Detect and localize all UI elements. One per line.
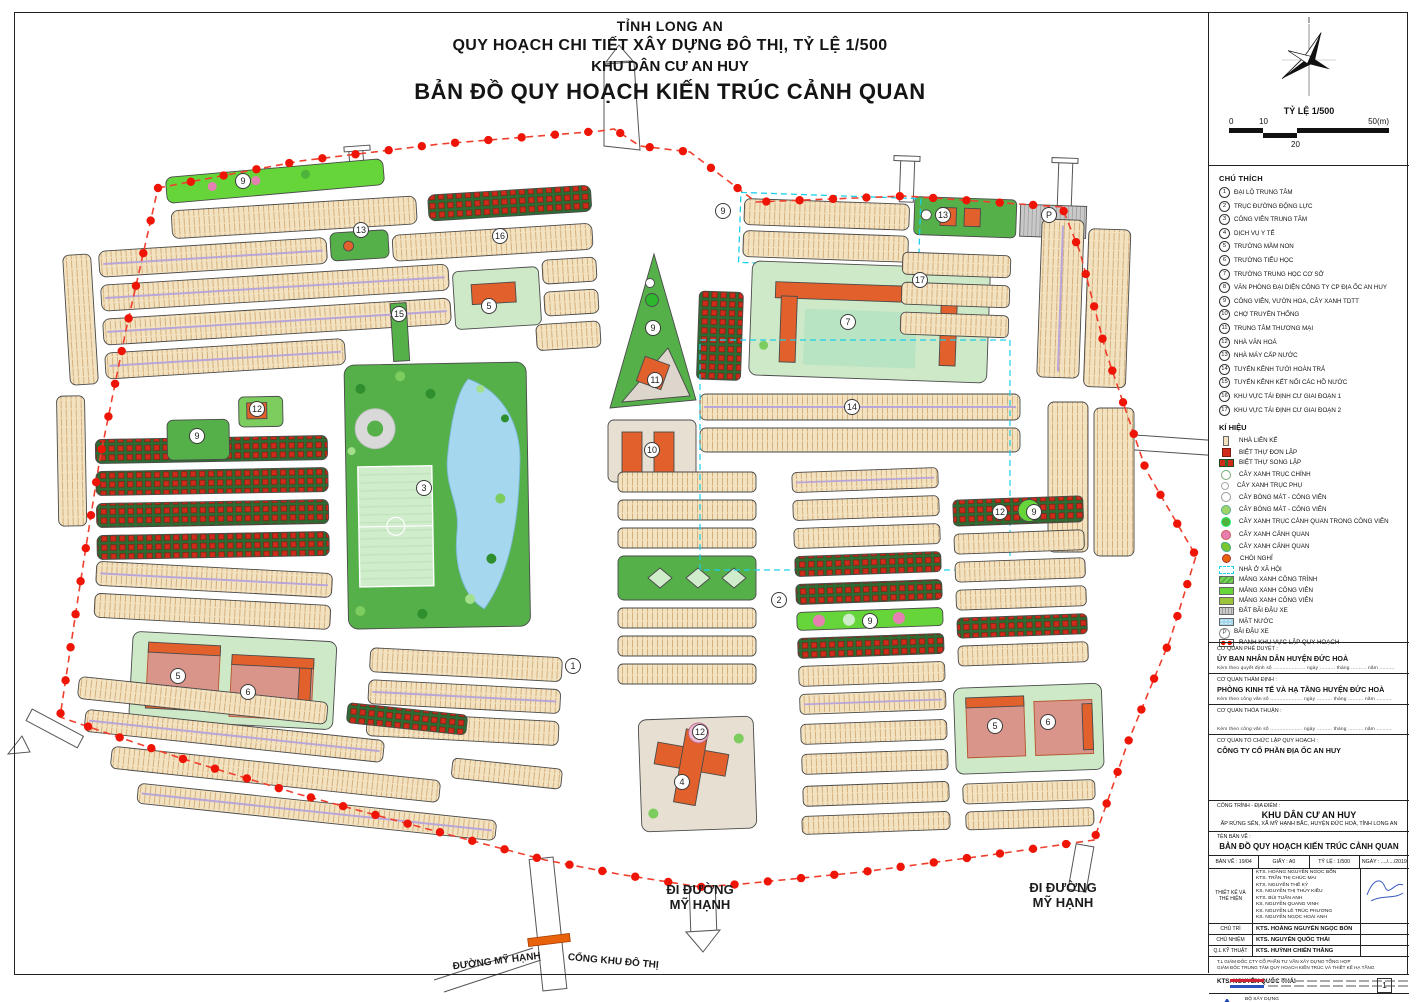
central-park xyxy=(344,362,531,629)
blocks-upper-right xyxy=(696,189,1131,394)
zone-marker-number: 1 xyxy=(570,661,575,671)
legend-item-number: 14 xyxy=(1219,364,1230,375)
symbol-item-label: NHÀ Ở XÃ HỘI xyxy=(1239,566,1282,574)
boundary-dot xyxy=(679,147,687,155)
boundary-dot xyxy=(1098,335,1106,343)
zone-marker: 5 xyxy=(171,669,186,684)
boundary-dot xyxy=(1082,270,1090,278)
blocks-upper-left xyxy=(60,185,601,385)
legend-item-label: TRƯỜNG MẦM NON xyxy=(1234,243,1294,250)
road-label: ĐI ĐƯỜNGMỸ HẠNH xyxy=(1029,880,1096,910)
scale-tick-0: 0 xyxy=(1229,117,1233,126)
plan-map: 91316155129315691110124913P177142912956 … xyxy=(0,0,1417,1002)
zone-marker-number: 14 xyxy=(847,402,857,412)
boundary-dot xyxy=(87,511,95,519)
symbol-item-label: CÂY XANH CẢNH QUAN xyxy=(1239,531,1309,539)
symbol-item-label: BIỆT THỰ ĐƠN LẬP xyxy=(1239,449,1297,457)
legend-item: 17KHU VỰC TÁI ĐỊNH CƯ GIAI ĐOẠN 2 xyxy=(1219,405,1403,416)
symbol-item-label: BIỆT THỰ SONG LẬP xyxy=(1239,459,1301,467)
boundary-dot xyxy=(61,676,69,684)
zone-marker-number: 9 xyxy=(240,176,245,186)
project-row: CÔNG TRÌNH - ĐỊA ĐIỂM : KHU DÂN CƯ AN HU… xyxy=(1209,801,1409,832)
approval-agency-name: PHÒNG KINH TẾ VÀ HẠ TẦNG HUYỆN ĐỨC HOÀ xyxy=(1217,685,1401,694)
drawing-caption: TÊN BẢN VẼ : xyxy=(1217,834,1401,840)
zone-marker: 17 xyxy=(913,273,928,288)
boundary-dot xyxy=(1137,705,1145,713)
legend-item-label: TRƯỜNG TIỂU HỌC xyxy=(1234,257,1293,264)
zone-marker: 14 xyxy=(845,400,860,415)
boundary-dot xyxy=(996,849,1004,857)
legend-item-label: TUYẾN KÊNH TƯỚI HOÀN TRẢ xyxy=(1234,366,1325,373)
legend-item-label: CÔNG VIÊN TRUNG TÂM xyxy=(1234,216,1307,223)
role-label: CHỦ TRÌ xyxy=(1209,924,1253,934)
boundary-dot xyxy=(118,347,126,355)
legend-item-label: CHỢ TRUYỀN THỐNG xyxy=(1234,311,1299,318)
role-signature xyxy=(1361,924,1409,934)
legend-item: 6TRƯỜNG TIỂU HỌC xyxy=(1219,255,1403,266)
boundary-dot xyxy=(1150,674,1158,682)
symbol-item-label: MẢNG XANH CÔNG VIÊN xyxy=(1239,587,1313,595)
boundary-dot xyxy=(211,764,219,772)
zone-marker: 4 xyxy=(675,775,690,790)
water-swatch xyxy=(1219,618,1234,626)
boundary-dot xyxy=(147,744,155,752)
legend-item: 10CHỢ TRUYỀN THỐNG xyxy=(1219,309,1403,320)
boundary-dot xyxy=(733,184,741,192)
legend-item-label: TRUNG TÂM THƯƠNG MẠI xyxy=(1234,325,1313,332)
zone-marker: 12 xyxy=(993,505,1008,520)
legend-item-number: 10 xyxy=(1219,309,1230,320)
legend-item-number: 17 xyxy=(1219,405,1230,416)
boundary-dot xyxy=(285,159,293,167)
legend-item: 15TUYẾN KÊNH KẾT NỐI CÁC HỒ NƯỚC xyxy=(1219,377,1403,388)
boundary-dot xyxy=(795,196,803,204)
zone-marker-number: 12 xyxy=(252,404,262,414)
boundary-dot xyxy=(219,171,227,179)
legend-item: 3CÔNG VIÊN TRUNG TÂM xyxy=(1219,214,1403,225)
zone-marker-number: 11 xyxy=(650,375,659,385)
boundary-dot xyxy=(146,216,154,224)
symbol-item: MẶT NƯỚC xyxy=(1219,618,1403,626)
school-block-southeast xyxy=(953,683,1104,774)
drawing-meta-cell: GIẤY : A0 xyxy=(1259,856,1309,868)
boundary-dot xyxy=(762,197,770,205)
signature-scribble xyxy=(1361,869,1409,913)
tree-swatch xyxy=(1221,530,1231,540)
company-logo-icon xyxy=(1215,999,1239,1002)
boundary-dot xyxy=(764,877,772,885)
boundary-dot xyxy=(339,802,347,810)
designer-name: KS. NGUYỄN NGỌC HOÀI ANH xyxy=(1256,915,1357,921)
boundary-dot xyxy=(371,811,379,819)
designer-names: KTS. HOÀNG NGUYỄN NGỌC BỔNKTS. TRẦN THỊ … xyxy=(1253,869,1361,923)
symbol-item: NHÀ Ở XÃ HỘI xyxy=(1219,566,1403,574)
role-row: CHỦ NHIỆMKTS. NGUYỄN QUỐC THÁI xyxy=(1209,935,1409,946)
legend-item-number: 7 xyxy=(1219,269,1230,280)
legend-item: 12NHÀ VĂN HOÁ xyxy=(1219,337,1403,348)
zone-marker-number: P xyxy=(1046,210,1052,220)
boundary-dot xyxy=(598,867,606,875)
symbol-item-label: CÂY BÓNG MÁT - CÔNG VIÊN xyxy=(1239,494,1326,502)
zone-marker: 9 xyxy=(716,204,731,219)
symbols-list: NHÀ LIÊN KẾBIỆT THỰ ĐƠN LẬPBIỆT THỰ SONG… xyxy=(1219,436,1403,647)
symbol-item: ĐẤT BÃI ĐẬU XE xyxy=(1219,607,1403,615)
boundary-dot xyxy=(1113,768,1121,776)
designers-label: THIẾT KẾ VÀ THỂ HIỆN xyxy=(1209,869,1253,923)
zone-marker-number: 12 xyxy=(695,727,705,737)
drawing-meta-cell: TỶ LỆ : 1/500 xyxy=(1310,856,1360,868)
symbol-item: CÂY XANH TRỤC CHÍNH xyxy=(1219,470,1403,480)
zone-marker-number: 9 xyxy=(720,206,725,216)
legend-item: 9CÔNG VIÊN, VƯỜN HOA, CÂY XANH TDTT xyxy=(1219,296,1403,307)
symbol-item-label: CÂY XANH TRỤC CẢNH QUAN TRONG CÔNG VIÊN xyxy=(1239,518,1389,526)
designers-row: THIẾT KẾ VÀ THỂ HIỆN KTS. HOÀNG NGUYỄN N… xyxy=(1209,869,1409,924)
blocks-right-colB xyxy=(947,495,1106,830)
zone-marker: 9 xyxy=(646,321,661,336)
role-name: KTS. HOÀNG NGUYỄN NGỌC BỔN xyxy=(1253,924,1361,934)
zone-marker-number: 15 xyxy=(394,309,404,319)
symbol-item: CÂY XANH TRỤC CẢNH QUAN TRONG CÔNG VIÊN xyxy=(1219,517,1403,527)
legend-item-number: 8 xyxy=(1219,282,1230,293)
boundary-dot xyxy=(1059,207,1067,215)
approval-box: CƠ QUAN THỎA THUẬN :Kèm theo công văn số… xyxy=(1209,704,1409,734)
titleblock-panel: CÔNG TRÌNH - ĐỊA ĐIỂM : KHU DÂN CƯ AN HU… xyxy=(1209,800,1409,973)
boundary-dot xyxy=(1190,548,1198,556)
symbol-item: CÂY XANH CẢNH QUAN xyxy=(1219,542,1403,552)
boundary-dot xyxy=(962,196,970,204)
zone-marker: 5 xyxy=(482,299,497,314)
symbol-item: CÂY XANH CẢNH QUAN xyxy=(1219,530,1403,540)
boundary-dot xyxy=(92,478,100,486)
boundary-dot xyxy=(84,722,92,730)
boundary-dot xyxy=(187,178,195,186)
boundary-dot xyxy=(351,150,359,158)
villa1-swatch xyxy=(1222,448,1231,457)
legend-item-label: TRỤC ĐƯỜNG ĐỘNG LỰC xyxy=(1234,203,1312,210)
legend-item: 5TRƯỜNG MẦM NON xyxy=(1219,241,1403,252)
role-name: KTS. HUỲNH CHIẾN THẮNG xyxy=(1253,946,1361,956)
zone-marker: 9 xyxy=(863,614,878,629)
approval-caption: CƠ QUAN THẨM ĐỊNH : xyxy=(1217,677,1401,683)
symbol-item-label: CHÒI NGHỈ xyxy=(1240,555,1273,563)
boundary-dot xyxy=(500,845,508,853)
scale-tick-50: 50(m) xyxy=(1368,117,1389,126)
legend-item: 8VĂN PHÒNG ĐẠI DIỆN CÔNG TY CP ĐỊA ỐC AN… xyxy=(1219,282,1403,293)
zone-marker-number: 16 xyxy=(495,231,505,241)
title-map-name: BẢN ĐỒ QUY HOẠCH KIẾN TRÚC CẢNH QUAN xyxy=(210,79,1130,105)
boundary-dot xyxy=(318,154,326,162)
tree-swatch xyxy=(1221,505,1231,515)
sheet-title: TỈNH LONG AN QUY HOẠCH CHI TIẾT XÂY DỰNG… xyxy=(210,16,1130,109)
symbol-item: MẢNG XANH CÔNG VIÊN xyxy=(1219,587,1403,595)
role-name: KTS. NGUYỄN QUỐC THÁI xyxy=(1253,935,1361,945)
boundary-dot xyxy=(1029,201,1037,209)
legend-item: 11TRUNG TÂM THƯƠNG MẠI xyxy=(1219,323,1403,334)
zone-marker-number: 3 xyxy=(421,483,426,493)
scale-tick-10: 10 xyxy=(1259,117,1268,126)
symbol-item: BIỆT THỰ SONG LẬP xyxy=(1219,459,1403,467)
boundary-dot xyxy=(551,130,559,138)
symbol-item-label: CÂY XANH CẢNH QUAN xyxy=(1239,543,1309,551)
project-caption: CÔNG TRÌNH - ĐỊA ĐIỂM : xyxy=(1217,803,1401,809)
boundary-dot xyxy=(862,193,870,201)
legend-heading: CHÚ THÍCH xyxy=(1219,174,1403,183)
zone-marker: 11 xyxy=(648,373,663,388)
boundary-dot xyxy=(132,282,140,290)
boundary-dot xyxy=(1090,302,1098,310)
symbol-item: CÂY BÓNG MÁT - CÔNG VIÊN xyxy=(1219,492,1403,502)
zone-marker: 5 xyxy=(988,719,1003,734)
zone-marker: 13 xyxy=(936,208,951,223)
legend-item-number: 16 xyxy=(1219,391,1230,402)
scale-bar: 0 10 50(m) 20 xyxy=(1229,117,1389,141)
legend-item-number: 2 xyxy=(1219,201,1230,212)
symbol-item: MẢNG XANH CÔNG TRÌNH xyxy=(1219,576,1403,584)
zone-marker-number: 17 xyxy=(915,275,925,285)
boundary-dot xyxy=(418,142,426,150)
legend-item-label: CÔNG VIÊN, VƯỜN HOA, CÂY XANH TDTT xyxy=(1234,298,1359,305)
legend-item-label: KHU VỰC TÁI ĐỊNH CƯ GIAI ĐOẠN 2 xyxy=(1234,407,1341,414)
compass-and-scale: I TỶ LỆ 1/500 0 10 50(m) 20 xyxy=(1209,12,1409,165)
approval-caption: CƠ QUAN THỎA THUẬN : xyxy=(1217,708,1401,714)
zone-marker-number: 2 xyxy=(776,595,781,605)
legend-item: 7TRƯỜNG TRUNG HỌC CƠ SỞ xyxy=(1219,269,1403,280)
boundary-dot xyxy=(82,544,90,552)
boundary-dot xyxy=(963,854,971,862)
boundary-dot xyxy=(863,867,871,875)
boundary-dot xyxy=(1183,580,1191,588)
zone-marker: 1 xyxy=(566,659,581,674)
symbol-item-label: MẢNG XANH CÔNG TRÌNH xyxy=(1239,576,1317,584)
boundary-dot xyxy=(584,128,592,136)
zone-marker-number: 9 xyxy=(1031,507,1036,517)
boundary-dot xyxy=(484,136,492,144)
symbol-item-label: NHÀ LIÊN KẾ xyxy=(1239,437,1278,445)
zone-marker-number: 7 xyxy=(845,317,850,327)
legend-item: 14TUYẾN KÊNH TƯỚI HOÀN TRẢ xyxy=(1219,364,1403,375)
legend-item-label: ĐẠI LỘ TRUNG TÂM xyxy=(1234,189,1293,196)
road-label: ĐI ĐƯỜNGMỸ HẠNH xyxy=(666,882,733,912)
boundary-dot xyxy=(1173,612,1181,620)
boundary-dot xyxy=(1156,491,1164,499)
approval-caption: CƠ QUAN TỔ CHỨC LẬP QUY HOẠCH : xyxy=(1217,738,1401,744)
diamond-park xyxy=(618,556,756,600)
symbol-item: CHÒI NGHỈ xyxy=(1219,554,1403,563)
boundary-dot xyxy=(98,445,106,453)
zone-marker-number: 5 xyxy=(486,301,491,311)
project-name: KHU DÂN CƯ AN HUY xyxy=(1217,810,1401,820)
boundary-dot xyxy=(996,198,1004,206)
boundary-dot xyxy=(154,184,162,192)
sidebar: I TỶ LỆ 1/500 0 10 50(m) 20 xyxy=(1208,12,1409,973)
boundary-dot xyxy=(76,577,84,585)
legend-panel: CHÚ THÍCH 1ĐẠI LỘ TRUNG TÂM2TRỤC ĐƯỜNG Đ… xyxy=(1209,165,1409,642)
boundary-dot xyxy=(1062,840,1070,848)
zone-marker: 6 xyxy=(1041,715,1056,730)
legend-item: 4DỊCH VỤ Y TẾ xyxy=(1219,228,1403,239)
plan-sheet: 91316155129315691110124913P177142912956 … xyxy=(0,0,1417,1002)
boundary-dot xyxy=(565,861,573,869)
boundary-dot xyxy=(252,165,260,173)
tree-swatch xyxy=(1221,517,1231,527)
approval-note: Kèm theo công văn số ...................… xyxy=(1217,697,1401,702)
legend-item-number: 4 xyxy=(1219,228,1230,239)
legend-item-label: TRƯỜNG TRUNG HỌC CƠ SỞ xyxy=(1234,271,1324,278)
zone-marker-number: 9 xyxy=(194,431,199,441)
title-project: KHU DÂN CƯ AN HUY xyxy=(210,58,1130,75)
legend-item-label: KHU VỰC TÁI ĐỊNH CƯ GIAI ĐOẠN 1 xyxy=(1234,393,1341,400)
role-rows: CHỦ TRÌKTS. HOÀNG NGUYỄN NGỌC BỔNCHỦ NHI… xyxy=(1209,924,1409,957)
boundary-dot xyxy=(1173,520,1181,528)
project-address: ẤP RỪNG SẾN, XÃ MỸ HẠNH BẮC, HUYỆN ĐỨC H… xyxy=(1217,821,1401,827)
approval-agency-name: ỦY BAN NHÂN DÂN HUYỆN ĐỨC HOÀ xyxy=(1217,654,1401,663)
boundary-dot xyxy=(116,733,124,741)
legend-list: 1ĐẠI LỘ TRUNG TÂM2TRỤC ĐƯỜNG ĐỘNG LỰC3CÔ… xyxy=(1219,187,1403,416)
boundary-dot xyxy=(124,314,132,322)
boundary-dot xyxy=(517,133,525,141)
role-signature xyxy=(1361,935,1409,945)
zone-marker-number: 12 xyxy=(995,507,1005,517)
legend-item-label: DỊCH VỤ Y TẾ xyxy=(1234,230,1275,237)
tree-swatch xyxy=(1221,492,1231,502)
role-label: Q.L KỸ THUẬT xyxy=(1209,946,1253,956)
zone-marker: 15 xyxy=(392,307,407,322)
boundary-dot xyxy=(829,195,837,203)
boundary-dot xyxy=(1029,845,1037,853)
legend-item-number: 11 xyxy=(1219,323,1230,334)
symbol-item-label: MẢNG XANH CÔNG VIÊN xyxy=(1239,597,1313,605)
zone-marker: 3 xyxy=(417,481,432,496)
signature-area xyxy=(1361,869,1409,923)
zone-marker: 10 xyxy=(645,443,660,458)
zone-marker-number: 9 xyxy=(650,323,655,333)
symbol-item-label: BÃI ĐẬU XE xyxy=(1234,628,1269,636)
social-swatch xyxy=(1219,566,1234,574)
blocks-right-colA xyxy=(790,468,951,835)
symbol-item: BÃI ĐẬU XE xyxy=(1219,628,1403,636)
approval-box: CƠ QUAN THẨM ĐỊNH :PHÒNG KINH TẾ VÀ HẠ T… xyxy=(1209,673,1409,704)
title-province: TỈNH LONG AN xyxy=(210,18,1130,34)
green-bright-swatch xyxy=(1219,587,1234,595)
boundary-dot xyxy=(1102,799,1110,807)
approval-note: Kèm theo công văn số ...................… xyxy=(1217,727,1401,732)
zone-marker-number: 5 xyxy=(175,671,180,681)
boundary-dot xyxy=(1092,831,1100,839)
zone-marker: 9 xyxy=(190,429,205,444)
boundary-dot xyxy=(830,871,838,879)
parking-p-swatch xyxy=(1219,628,1229,636)
legend-item: 13NHÀ MÁY CẤP NƯỚC xyxy=(1219,350,1403,361)
boundary-dot xyxy=(896,863,904,871)
boundary-dot xyxy=(243,774,251,782)
drawing-meta-cells: BẢN VẼ : 19/04GIẤY : A0TỶ LỆ : 1/500NGÀY… xyxy=(1209,856,1409,869)
boundary-dot xyxy=(797,874,805,882)
approval-agency-name: CÔNG TY CỔ PHẦN ĐỊA ỐC AN HUY xyxy=(1217,746,1401,755)
legend-item-number: 9 xyxy=(1219,296,1230,307)
zone-marker: 12 xyxy=(693,725,708,740)
boundary-dot xyxy=(896,192,904,200)
zone-marker: 6 xyxy=(241,685,256,700)
approval-box: CƠ QUAN TỔ CHỨC LẬP QUY HOẠCH :CÔNG TY C… xyxy=(1209,734,1409,760)
boundary-dot xyxy=(930,858,938,866)
boundary-dot xyxy=(179,755,187,763)
drawing-meta-cell: NGÀY : ..../..../2019 xyxy=(1360,856,1409,868)
boundary-dot xyxy=(707,164,715,172)
symbols-heading: KÍ HIỆU xyxy=(1219,423,1403,432)
drawing-meta-cell: BẢN VẼ : 19/04 xyxy=(1209,856,1259,868)
zone-marker: 16 xyxy=(493,229,508,244)
zone-marker-number: 5 xyxy=(992,721,997,731)
zone-marker-number: 4 xyxy=(679,777,684,787)
legend-item: 2TRỤC ĐƯỜNG ĐỘNG LỰC xyxy=(1219,201,1403,212)
boundary-dot xyxy=(1130,430,1138,438)
scale-title: TỶ LỆ 1/500 xyxy=(1209,106,1409,116)
zone-marker: 12 xyxy=(250,402,265,417)
drawing-row: TÊN BẢN VẼ : BẢN ĐỒ QUY HOẠCH KIẾN TRÚC … xyxy=(1209,832,1409,856)
symbol-item-label: CÂY XANH TRỤC CHÍNH xyxy=(1239,471,1311,479)
tree-swatch xyxy=(1221,470,1231,480)
legend-item-number: 13 xyxy=(1219,350,1230,361)
role-row: Q.L KỸ THUẬTKTS. HUỲNH CHIẾN THẮNG xyxy=(1209,946,1409,957)
zone-marker: 9 xyxy=(236,174,251,189)
legend-item-number: 15 xyxy=(1219,377,1230,388)
legend-item-label: TUYẾN KÊNH KẾT NỐI CÁC HỒ NƯỚC xyxy=(1234,379,1347,386)
villa2-swatch xyxy=(1219,459,1234,467)
symbol-item: MẢNG XANH CÔNG VIÊN xyxy=(1219,597,1403,605)
house-swatch xyxy=(1223,436,1229,446)
boundary-dot xyxy=(104,412,112,420)
boundary-dot xyxy=(275,784,283,792)
role-signature xyxy=(1361,946,1409,956)
zone-marker-number: 13 xyxy=(356,225,366,235)
symbol-item: CÂY XANH TRỤC PHỤ xyxy=(1219,482,1403,490)
boundary-dot xyxy=(307,793,315,801)
symbol-item-label: CÂY XANH TRỤC PHỤ xyxy=(1237,482,1302,490)
corner-fine-print: 1 xyxy=(1230,977,1408,999)
zone-marker: 13 xyxy=(354,223,369,238)
approval-caption: CƠ QUAN PHÊ DUYỆT : xyxy=(1217,646,1401,652)
boundary-dot xyxy=(1140,461,1148,469)
boundary-dot xyxy=(1072,238,1080,246)
boundary-dot xyxy=(468,837,476,845)
scale-tick-20: 20 xyxy=(1291,140,1300,149)
boundary-dot xyxy=(139,249,147,257)
symbol-item: CÂY BÓNG MÁT - CÔNG VIÊN xyxy=(1219,505,1403,515)
boundary-dot xyxy=(71,610,79,618)
symbol-item-label: MẶT NƯỚC xyxy=(1239,618,1273,626)
symbol-item-label: ĐẤT BÃI ĐẬU XE xyxy=(1239,607,1288,615)
legend-item-label: VĂN PHÒNG ĐẠI DIỆN CÔNG TY CP ĐỊA ỐC AN … xyxy=(1234,284,1387,291)
legend-item-number: 1 xyxy=(1219,187,1230,198)
boundary-dot xyxy=(1108,366,1116,374)
boundary-dot xyxy=(111,380,119,388)
boundary-dot xyxy=(384,146,392,154)
zone-marker-number: 6 xyxy=(245,687,250,697)
gazebo-swatch xyxy=(1222,554,1231,563)
role-label: CHỦ NHIỆM xyxy=(1209,935,1253,945)
boundary-dot xyxy=(631,873,639,881)
boundary-dot xyxy=(451,139,459,147)
approvals-panel: CƠ QUAN PHÊ DUYỆT :ỦY BAN NHÂN DÂN HUYỆN… xyxy=(1209,642,1409,800)
delegation-note: T.L GIÁM ĐỐC CTY CỔ PHẦN TƯ VẤN XÂY DỰNG… xyxy=(1209,957,1409,975)
green-hatch-swatch xyxy=(1219,576,1234,584)
boundary-dot xyxy=(1124,736,1132,744)
legend-item: 1ĐẠI LỘ TRUNG TÂM xyxy=(1219,187,1403,198)
zone-marker: 7 xyxy=(841,315,856,330)
approval-agency-name xyxy=(1217,716,1401,724)
legend-item-number: 6 xyxy=(1219,255,1230,266)
zone-marker-number: 6 xyxy=(1045,717,1050,727)
